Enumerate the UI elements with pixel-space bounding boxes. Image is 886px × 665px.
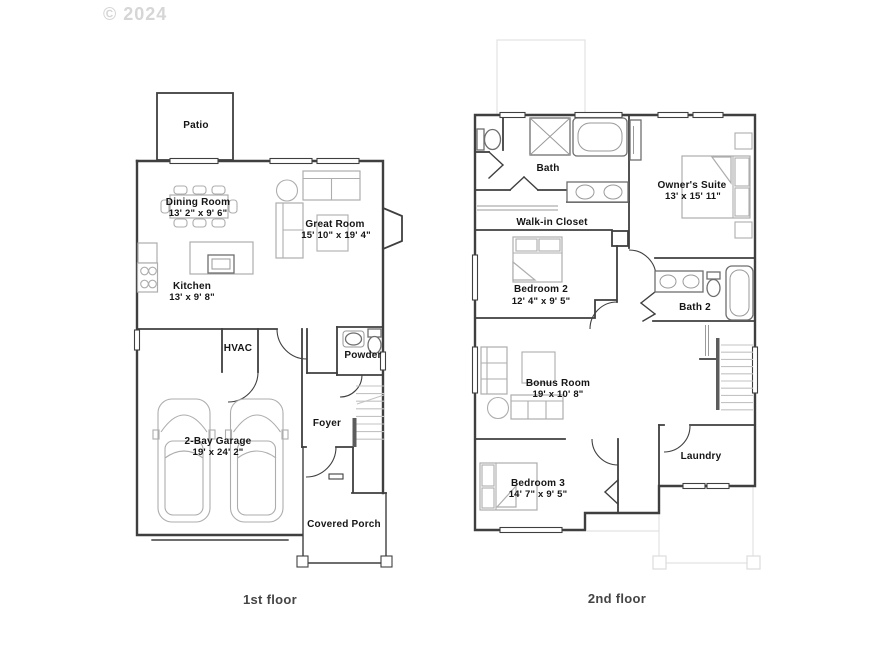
floor2-caption: 2nd floor: [588, 591, 646, 606]
floor1-great-room-furniture: [276, 171, 360, 258]
room-label-kitchen: Kitchen: [173, 281, 211, 292]
room-dims-owners: 13' x 15' 11": [665, 191, 721, 202]
floor2-bedroom2-furniture: [513, 237, 562, 282]
room-label-bonus: Bonus Room: [526, 378, 590, 389]
room-dims-great: 15' 10" x 19' 4": [301, 230, 371, 241]
room-label-hvac: HVAC: [224, 343, 252, 354]
room-label-patio: Patio: [183, 120, 208, 131]
room-label-great: Great Room: [305, 219, 364, 230]
room-label-bed2: Bedroom 2: [514, 284, 568, 295]
room-dims-bed3: 14' 7" x 9' 5": [509, 489, 568, 500]
room-label-porch: Covered Porch: [307, 519, 381, 530]
room-label-powder: Powder: [344, 350, 381, 361]
room-dims-garage: 19' x 24' 2": [192, 447, 243, 458]
room-dims-dining: 13' 2" x 9' 6": [169, 208, 228, 219]
floor-plan-drawing: Patio Dining Room 13' 2" x 9' 6" Great R…: [0, 0, 886, 665]
room-label-bath2: Bath 2: [679, 302, 711, 313]
floor-plan-page: Patio Dining Room 13' 2" x 9' 6" Great R…: [0, 0, 886, 665]
floor1-stairs: [353, 386, 385, 447]
floor1-walls: [137, 93, 402, 567]
room-label-garage: 2-Bay Garage: [185, 436, 252, 447]
room-dims-kitchen: 13' x 9' 8": [169, 292, 215, 303]
floor2-stairs: [706, 325, 754, 410]
room-dims-bed2: 12' 4" x 9' 5": [512, 296, 571, 307]
room-label-owners: Owner's Suite: [658, 180, 727, 191]
copyright-watermark: © 2024: [103, 4, 167, 24]
room-label-closet: Walk-in Closet: [516, 217, 588, 228]
room-label-bed3: Bedroom 3: [511, 478, 565, 489]
room-label-foyer: Foyer: [313, 418, 341, 429]
floor1-caption: 1st floor: [243, 592, 297, 607]
floor1-garage-cars: [153, 399, 288, 522]
room-label-dining: Dining Room: [166, 197, 230, 208]
room-label-laundry: Laundry: [681, 451, 722, 462]
second-floor-plan: Bath Walk-in Closet Owner's Suite 13' x …: [473, 40, 761, 606]
room-label-bath: Bath: [536, 163, 559, 174]
first-floor-plan: Patio Dining Room 13' 2" x 9' 6" Great R…: [135, 93, 403, 607]
room-dims-bonus: 19' x 10' 8": [532, 389, 583, 400]
